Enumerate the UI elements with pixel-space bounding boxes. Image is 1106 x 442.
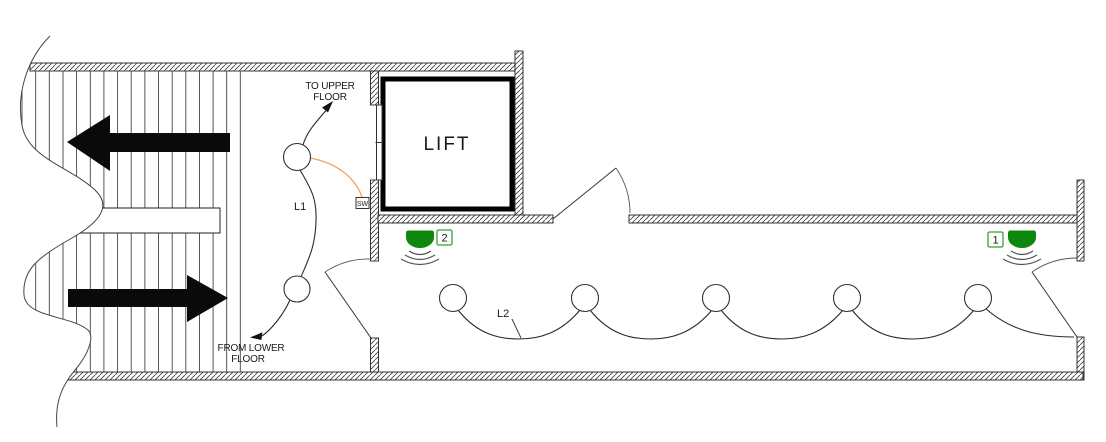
floor-plan: LIFT SW L1 L2 [0,0,1106,442]
lift-label: LIFT [423,134,470,155]
switch-drop-wire [310,158,362,197]
l2-lamp-4 [834,285,861,312]
to-upper-floor-label-line1: TO UPPER [305,81,354,92]
switch-label: SW [357,201,369,208]
wall-corridor-top-left [378,215,553,223]
l2-lamp-2 [572,285,599,312]
l2-lamp-1 [440,285,467,312]
wall-lift-left-top-stub [371,71,379,105]
stair-arrow-right-icon [68,275,228,322]
l2-swag-3 [721,310,843,339]
door-lobby-swing [325,259,371,272]
circuit-l1-label: L1 [294,201,306,213]
circuit-l1: L1 [250,101,362,340]
wall-lift-right [515,51,523,223]
sensor-wave-icon [405,255,435,260]
motion-sensor-1: 1 [988,231,1041,265]
l1-wire-to-upper [303,107,329,145]
wall-corridor-top-right [629,215,1077,223]
l2-swag-5 [984,307,1074,337]
door-corridor-top [553,168,630,219]
from-lower-floor-label-line1: FROM LOWER [218,343,285,354]
l2-label-leader [512,319,521,338]
wall-top [30,63,515,71]
door-corridor-top-swing [616,168,630,213]
motion-sensor-icon [406,231,434,249]
l1-lamp-1 [284,144,311,171]
sensor-wave-icon [1011,251,1033,255]
l2-lamp-3 [703,285,730,312]
stair-arrow-left-icon [67,115,230,171]
sensor-1-number: 1 [992,235,998,247]
l2-swag-4 [852,310,974,339]
l1-lamp-2 [284,276,310,302]
sensor-wave-icon [409,251,431,255]
door-lobby [325,259,371,338]
from-lower-arrowhead-icon [250,332,262,340]
lift-shaft: LIFT [376,79,513,209]
door-lobby-leaf [325,272,371,338]
door-corridor-right [1032,258,1077,337]
floor-plan-canvas: LIFT SW L1 L2 [0,0,1106,442]
motion-sensor-icon [1008,231,1036,249]
sensor-wave-icon [1007,255,1037,260]
wall-bottom [55,372,1083,380]
motion-sensor-2: 2 [401,230,452,265]
staircase [0,36,240,427]
wall-corridor-right-upper [1077,180,1084,261]
annotations: TO UPPER FLOOR FROM LOWER FLOOR [218,81,355,365]
circuit-l2: L2 [440,285,1075,340]
wall-lobby-corridor [371,180,379,261]
l2-lamp-5 [965,285,992,312]
light-switch: SW [356,198,369,209]
door-corridor-top-leaf [553,168,616,219]
l2-swag-2 [590,310,712,339]
to-upper-floor-label-line2: FLOOR [313,92,346,103]
sensor-2-number: 2 [441,233,447,245]
l1-wire-to-lower [262,300,290,336]
l1-wire-mid [300,170,316,277]
door-corridor-right-leaf [1032,272,1077,337]
from-lower-floor-label-line2: FLOOR [231,354,264,365]
circuit-l2-label: L2 [497,308,509,320]
